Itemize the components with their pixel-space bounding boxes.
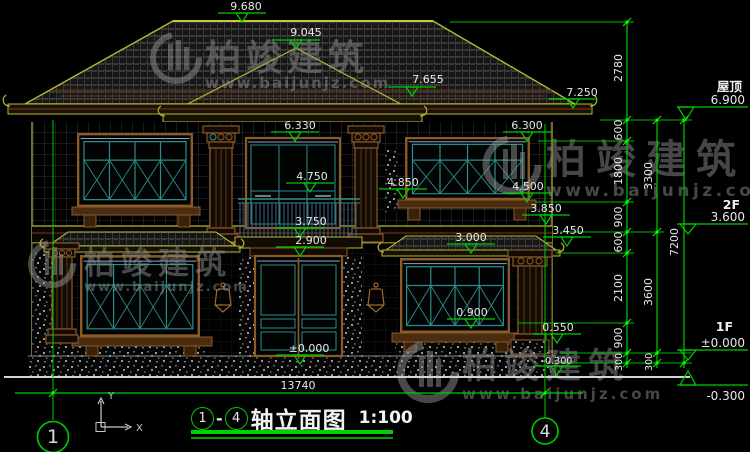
dim-600b: 600	[612, 232, 625, 253]
title-axis-to: 4	[232, 411, 240, 426]
elev-porch-ridge: 7.655	[412, 73, 444, 86]
level-1f: 1F ±0.000	[677, 319, 748, 360]
title-axis-to-bubble: 4	[225, 407, 248, 430]
elev-ridge: 9.680	[230, 0, 262, 13]
elev-pedestal-top: 0.550	[542, 321, 574, 334]
dim-300b: 300	[644, 353, 655, 371]
title-axis-from: 1	[198, 411, 206, 426]
level-1f-label: 1F	[716, 319, 733, 334]
entrance-door	[250, 248, 347, 356]
title-underline-thin	[191, 437, 393, 439]
axis-bubble-4: 4	[532, 418, 558, 444]
dim-900b: 900	[612, 328, 625, 349]
dim-roof-height: 2780	[612, 54, 625, 82]
elev-win1f-right-sill: 0.900	[456, 306, 488, 319]
elev-win2f-right-top: 6.300	[511, 119, 543, 132]
level-roof-label: 屋顶	[717, 79, 743, 94]
axis-number-right: 4	[540, 422, 551, 442]
elev-belt-bottom: 3.450	[552, 224, 584, 237]
level-2f: 2F 3.600	[677, 197, 748, 234]
watermark-url: www.baijunjz.com	[205, 74, 390, 92]
elev-base-right: -0.300	[542, 356, 573, 367]
elev-balcony-floor: 3.750	[295, 215, 327, 228]
ucs-y-label: Y	[107, 391, 115, 402]
watermark-brand: 柏竣建筑	[205, 38, 369, 79]
dim-total: 7200	[668, 228, 681, 256]
elev-main-eave: 7.250	[566, 86, 598, 99]
axis-number-left: 1	[47, 426, 59, 448]
level-1f-value: ±0.000	[701, 336, 745, 350]
elev-win2f-center-top: 6.330	[284, 119, 316, 132]
drawing-svg: 柏竣建筑 www.baijunjz.com 柏竣建筑 www.baijunjz.…	[0, 0, 750, 452]
dim-900a: 900	[612, 207, 625, 228]
title-axis-from-bubble: 1	[191, 407, 214, 430]
ucs-icon: Y X	[96, 391, 143, 434]
level-roof: 屋顶 6.900	[677, 79, 748, 120]
left-2f-window	[72, 134, 200, 227]
axis-bubble-1: 1	[38, 422, 69, 452]
elev-belt-top: 3.850	[530, 202, 562, 215]
elev-threshold: ±0.000	[289, 342, 330, 355]
title-scale: 1:100	[359, 408, 413, 428]
dim-3600: 3600	[642, 278, 655, 306]
elev-hip-apex: 9.045	[290, 26, 322, 39]
dim-600a: 600	[612, 120, 625, 141]
level-ground-value: -0.300	[706, 389, 745, 403]
dim-300a: 300	[614, 353, 625, 371]
dim-overall-width: 13740	[281, 379, 316, 392]
watermark-url: www.baijunjz.com	[84, 280, 249, 295]
watermark-brand: 柏竣建筑	[84, 246, 232, 282]
level-ground: -0.300	[677, 371, 748, 403]
ucs-x-label: X	[136, 423, 143, 434]
elev-railing-top: 4.850	[387, 176, 419, 189]
level-2f-value: 3.600	[711, 210, 745, 224]
elev-win1f-right-top: 3.000	[455, 231, 487, 244]
title-dash: -	[216, 409, 223, 428]
level-roof-value: 6.900	[711, 93, 745, 107]
dim-1800: 1800	[612, 157, 625, 185]
dim-2100: 2100	[612, 274, 625, 302]
dim-3300: 3300	[642, 162, 655, 190]
elev-door-top: 2.900	[295, 234, 327, 247]
elevation-drawing-canvas: 柏竣建筑 www.baijunjz.com 柏竣建筑 www.baijunjz.…	[0, 0, 750, 452]
elev-transom: 4.750	[296, 170, 328, 183]
title-underline-thick	[191, 430, 393, 434]
watermark-url: www.baijunjz.com	[462, 385, 663, 403]
elev-win2f-right-sill: 4.500	[512, 180, 544, 193]
